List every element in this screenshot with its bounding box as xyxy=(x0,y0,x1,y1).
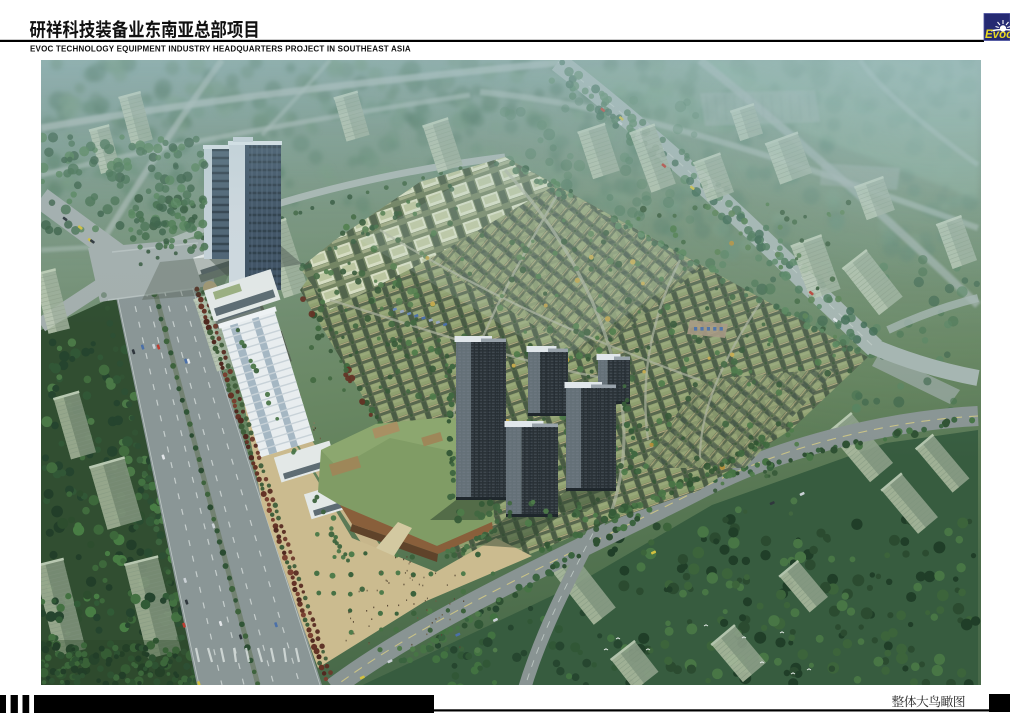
svg-text:Evoc: Evoc xyxy=(985,29,1010,41)
svg-text:EVOC TECHNOLOGY EQUIPMENT INDU: EVOC TECHNOLOGY EQUIPMENT INDUSTRY HEADQ… xyxy=(30,45,411,54)
